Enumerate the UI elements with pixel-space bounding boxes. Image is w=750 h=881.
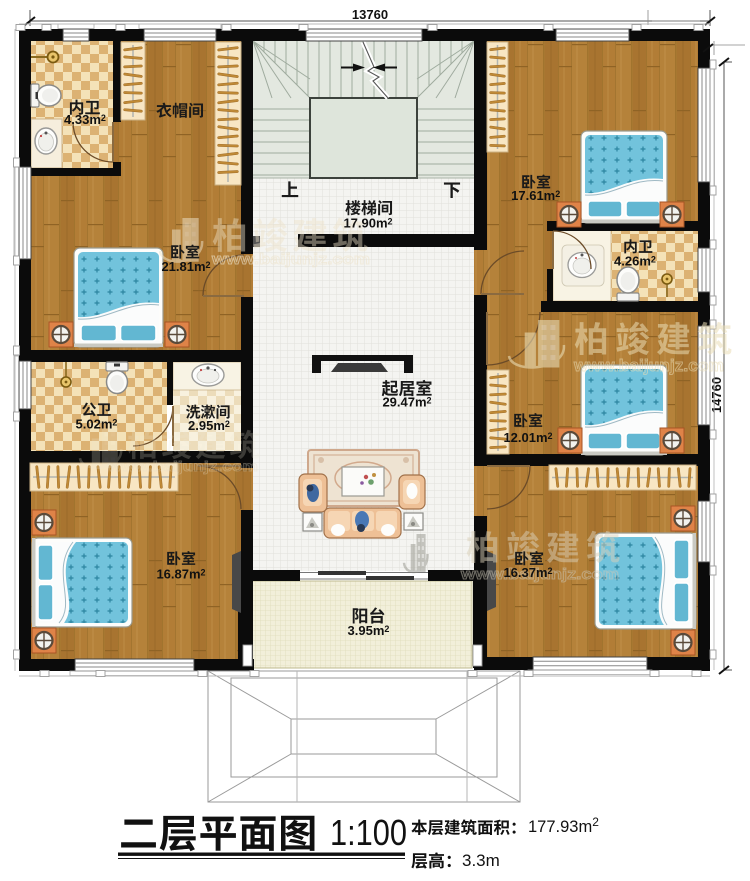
svg-text:www.baijunjz.com: www.baijunjz.com bbox=[573, 356, 724, 375]
svg-text:14760: 14760 bbox=[709, 377, 724, 413]
svg-text:17.90m2: 17.90m2 bbox=[343, 216, 392, 231]
svg-text:4.33m2: 4.33m2 bbox=[64, 112, 106, 127]
svg-text:21.81m2: 21.81m2 bbox=[161, 259, 210, 274]
svg-text:177.93m2: 177.93m2 bbox=[528, 815, 599, 836]
svg-text:www.baijunjz.com: www.baijunjz.com bbox=[211, 251, 370, 268]
svg-text:13760: 13760 bbox=[352, 7, 388, 22]
svg-text:2.95m2: 2.95m2 bbox=[188, 418, 230, 433]
svg-text:3.95m2: 3.95m2 bbox=[348, 623, 390, 638]
svg-text:17.61m2: 17.61m2 bbox=[511, 188, 560, 203]
svg-text:3.3m: 3.3m bbox=[462, 851, 500, 870]
svg-text:16.87m2: 16.87m2 bbox=[156, 567, 205, 582]
svg-text:29.47m2: 29.47m2 bbox=[382, 395, 431, 410]
svg-text:5.02m2: 5.02m2 bbox=[76, 417, 118, 432]
svg-text:1:100: 1:100 bbox=[330, 812, 407, 853]
svg-text:16.37m2: 16.37m2 bbox=[503, 565, 552, 580]
svg-text:12.01m2: 12.01m2 bbox=[503, 430, 552, 445]
svg-text:4.26m2: 4.26m2 bbox=[614, 254, 656, 269]
svg-text:www.baijunjz.com: www.baijunjz.com bbox=[107, 458, 258, 474]
